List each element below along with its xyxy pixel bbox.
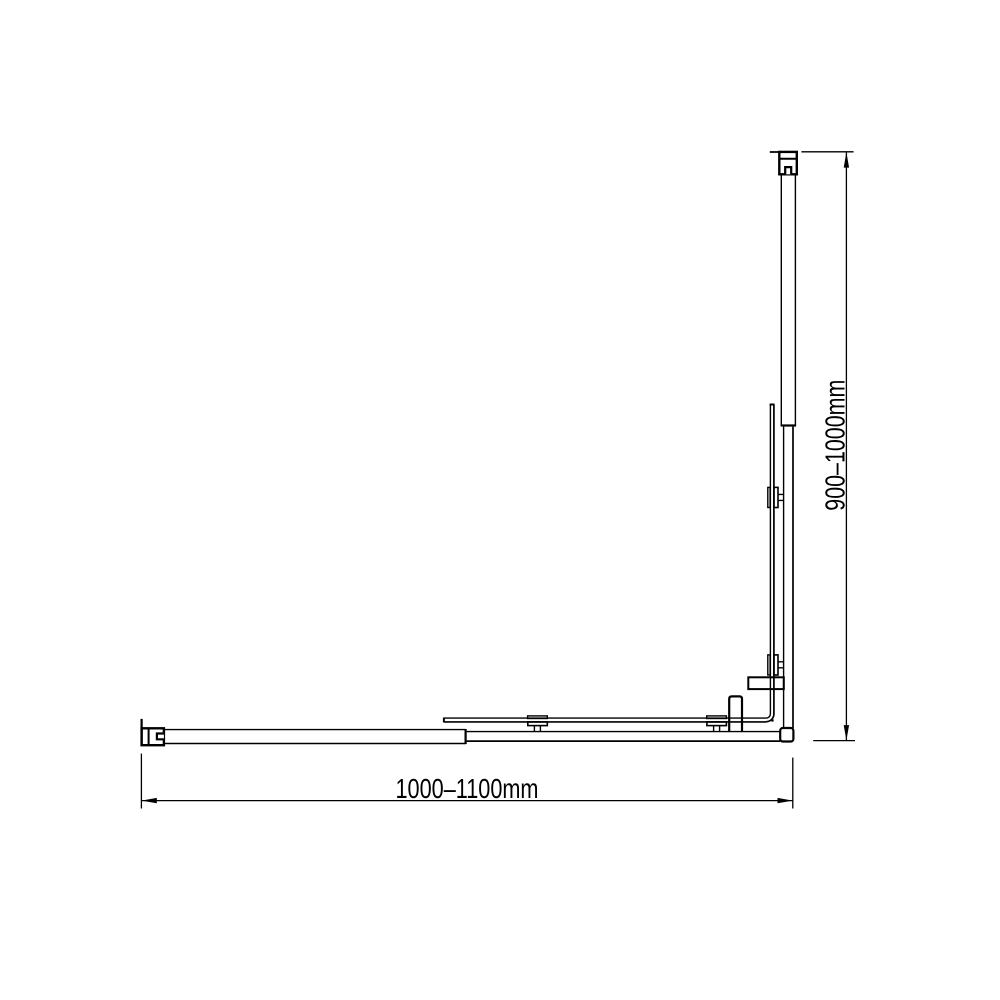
svg-text:900–1000mm: 900–1000mm <box>819 380 850 511</box>
svg-text:1000–1100mm: 1000–1100mm <box>396 773 539 804</box>
